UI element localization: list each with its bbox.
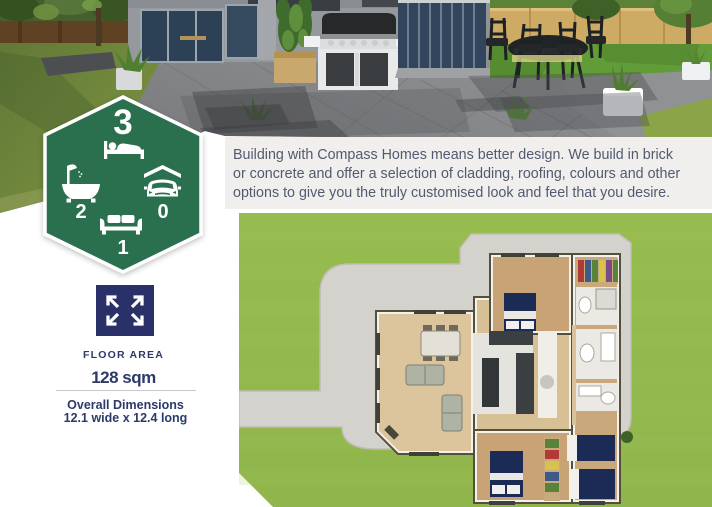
svg-text:3: 3 (113, 103, 132, 142)
svg-text:1: 1 (117, 237, 128, 259)
svg-text:0: 0 (157, 201, 168, 223)
svg-text:2: 2 (75, 201, 86, 223)
